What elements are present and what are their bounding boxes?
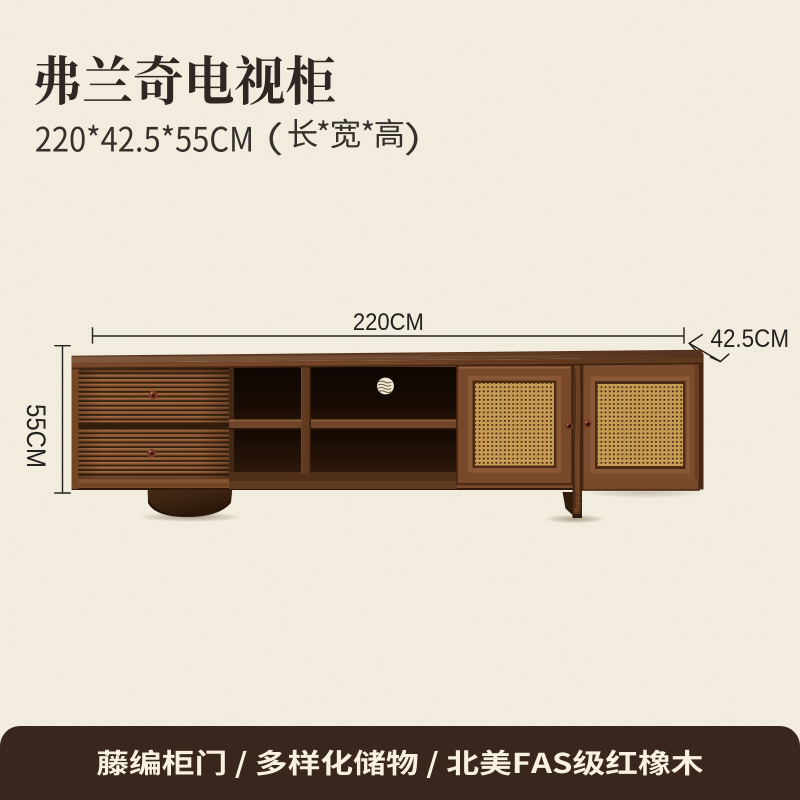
- svg-text:42.5CM: 42.5CM: [711, 325, 790, 353]
- svg-text:220CM: 220CM: [353, 309, 424, 336]
- svg-text:55CM: 55CM: [21, 404, 51, 468]
